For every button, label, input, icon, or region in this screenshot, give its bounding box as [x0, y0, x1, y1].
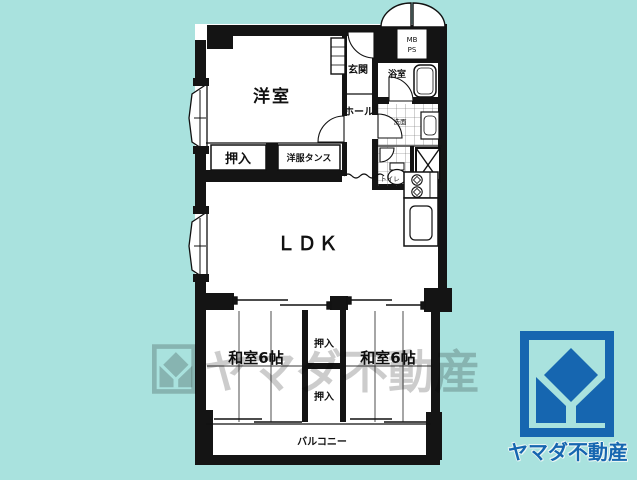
entrance-door-leaf-left — [381, 3, 411, 27]
label-ldk: ＬＤＫ — [276, 233, 339, 255]
shoe-cabinet — [331, 38, 345, 74]
label-bathroom: 浴室 — [388, 68, 406, 80]
label-washroom: 洗面 — [394, 117, 408, 126]
label-japanese-room-right: 和室6帖 — [360, 349, 415, 367]
label-balcony: バルコニー — [297, 436, 347, 448]
company-logo-text: ヤマダ不動産 — [498, 436, 637, 465]
label-entrance: 玄関 — [348, 63, 368, 76]
entrance-double-doors — [381, 3, 445, 27]
label-ps: PS — [408, 46, 417, 54]
company-logo: ヤマダ不動産 — [520, 331, 616, 441]
mbps-box — [397, 29, 427, 59]
entrance-door-leaf-right — [413, 3, 445, 27]
label-hall: ホール — [344, 106, 374, 118]
label-japanese-room-left: 和室6帖 — [228, 349, 283, 367]
label-closet-mid-lower: 押入 — [314, 390, 334, 403]
kitchen-sink — [410, 206, 432, 240]
company-logo-icon — [520, 331, 614, 437]
label-toilet: トイレ — [380, 175, 400, 183]
label-closet-mid-upper: 押入 — [314, 337, 334, 350]
label-western-room: 洋室 — [253, 86, 291, 107]
label-mb: MB — [407, 36, 418, 44]
label-closet-upper-row: 押入 — [225, 151, 251, 167]
label-wardrobe: 洋服タンス — [287, 152, 332, 164]
page-canvas: 洋室 玄関 MB PS 浴室 ホール 洗面 トイレ 押入 洋服タンス ＬＤＫ 和… — [0, 0, 637, 480]
